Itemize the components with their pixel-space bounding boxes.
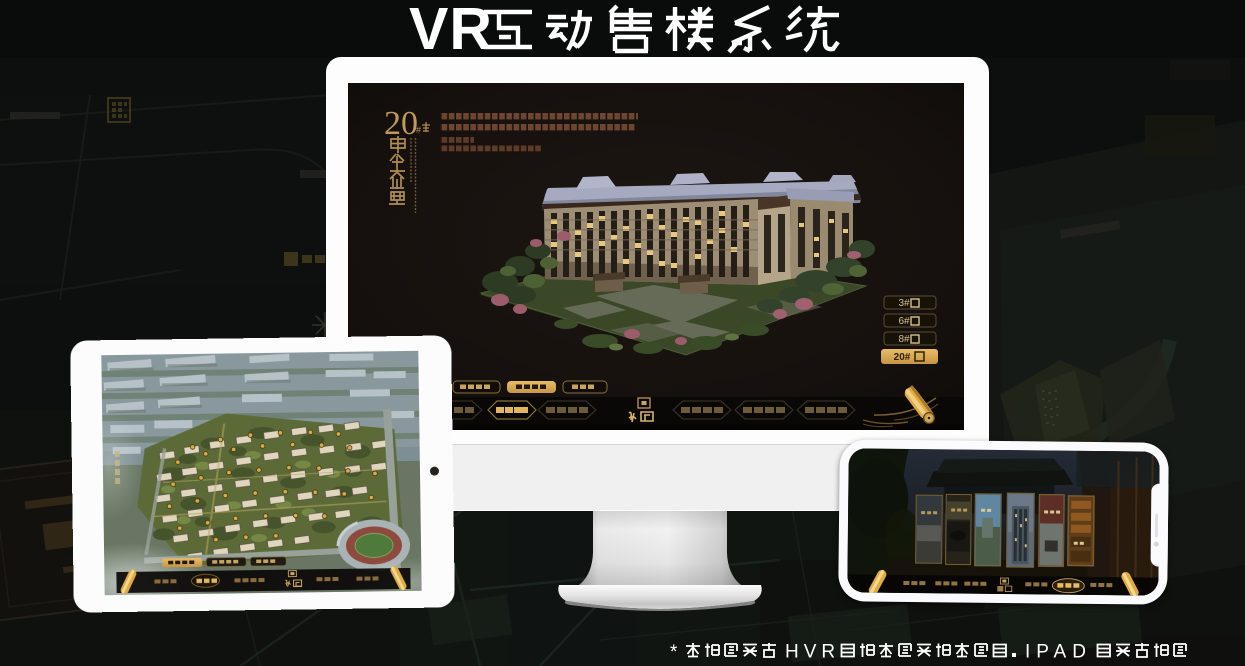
svg-text:IPAD: IPAD bbox=[1025, 642, 1092, 663]
svg-text:8#: 8# bbox=[898, 334, 910, 345]
svg-text:#: # bbox=[416, 125, 421, 135]
svg-text:VR: VR bbox=[409, 0, 493, 58]
svg-text:*: * bbox=[670, 642, 678, 663]
svg-text:20: 20 bbox=[384, 105, 418, 142]
svg-text:20#: 20# bbox=[894, 352, 911, 363]
svg-text:HVR: HVR bbox=[785, 642, 840, 663]
svg-text:6#: 6# bbox=[898, 316, 910, 327]
svg-text:3#: 3# bbox=[898, 298, 910, 309]
